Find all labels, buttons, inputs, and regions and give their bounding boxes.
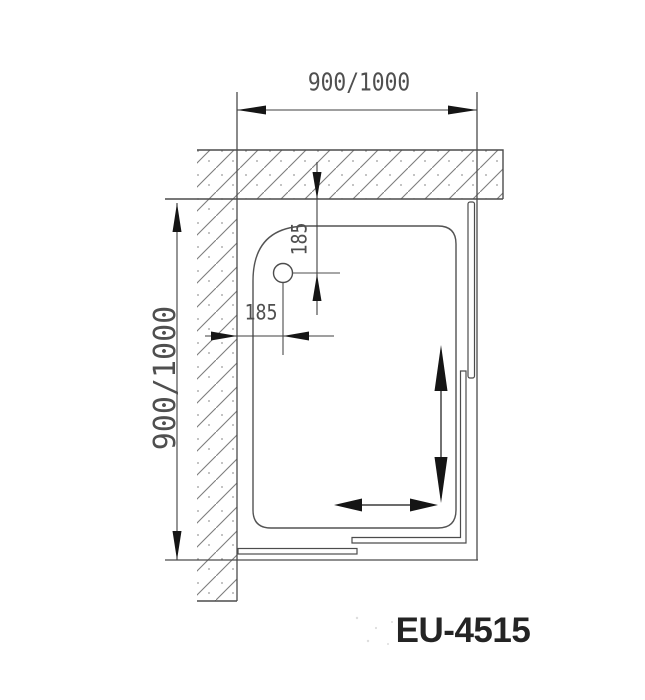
top-wall-hatch [197, 150, 503, 199]
drain-vertical-dimension-label: 185 [290, 222, 311, 255]
top-dim-arrow-left-icon [237, 106, 266, 115]
drain-horizontal-dimension-label: 185 [244, 303, 277, 324]
left-wall-hatch [197, 199, 237, 601]
wall-side-door-panel [238, 549, 357, 555]
left-dim-arrow-up-icon [173, 203, 182, 232]
fixed-glass-panel [468, 202, 475, 378]
left-dimension-label: 900/1000 [151, 306, 181, 451]
shower-enclosure-plan-drawing: 900/1000 900/1000 185 185 EU-4515 [0, 0, 645, 700]
top-dim-arrow-right-icon [448, 106, 477, 115]
technical-drawing-svg [0, 0, 645, 700]
top-dimension-label: 900/1000 [308, 70, 410, 95]
model-number-label: EU-4515 [396, 611, 531, 651]
left-dim-arrow-down-icon [173, 531, 182, 560]
drain-circle [274, 264, 293, 283]
